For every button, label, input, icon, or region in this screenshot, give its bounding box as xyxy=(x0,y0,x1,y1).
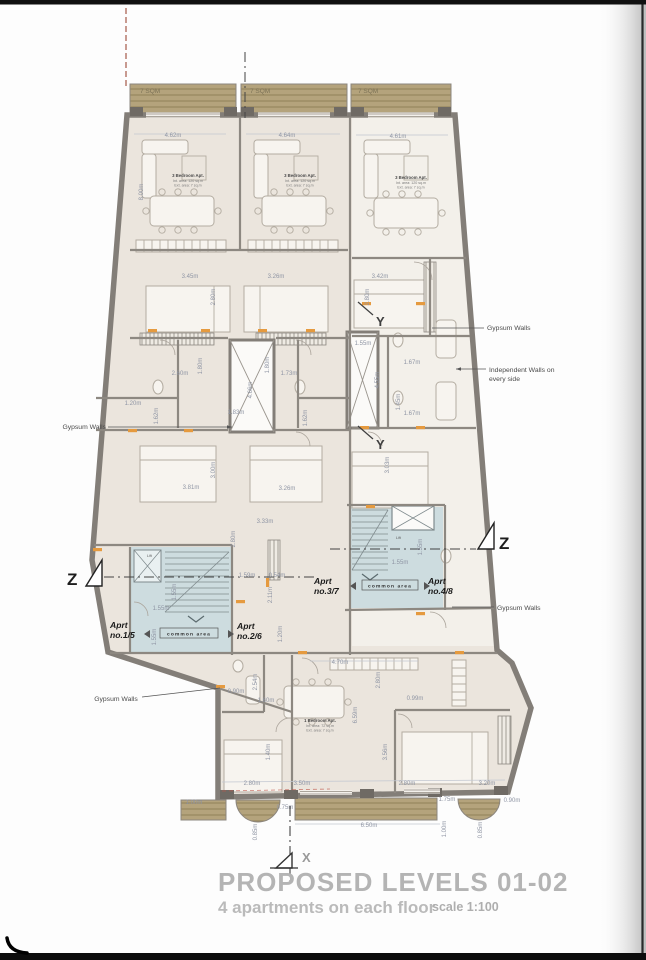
section-marker-y-upper: Y xyxy=(376,314,385,329)
drawing-title: PROPOSED LEVELS 01-02 xyxy=(218,867,568,897)
dimension-label: 0.90m xyxy=(504,798,521,804)
dimension-label: 1.75m xyxy=(439,797,456,803)
dimension-label: 4.66m xyxy=(248,382,254,399)
dimension-label: 1.80m xyxy=(198,358,204,375)
gypsum-walls-note: Gypsum Walls xyxy=(497,605,541,612)
dimension-label: 0.54m xyxy=(269,573,286,579)
dimension-label: 0.85m xyxy=(478,822,484,839)
dimension-label: 3.50m xyxy=(294,781,311,787)
gypsum-walls-note: Gypsum Walls xyxy=(62,424,106,431)
apartment-tag: Aprt xyxy=(313,576,333,586)
dimension-label: 2.80m xyxy=(211,289,217,306)
dimension-label: 4.61m xyxy=(390,134,407,140)
dimension-label: 0.99m xyxy=(407,696,424,702)
dimension-label: 0.90m xyxy=(228,689,245,695)
balcony-semicircle-left xyxy=(236,800,280,822)
unit-int-area: Int. area: 120 sq.m xyxy=(285,179,315,183)
dimension-label: 3.26m xyxy=(268,274,285,280)
dimension-label: 0.85m xyxy=(253,824,259,841)
scan-bottom-bar xyxy=(0,953,646,960)
lift-label: Lift xyxy=(147,554,152,558)
apartment-tag: Aprt xyxy=(109,620,129,630)
gypsum-walls-note: Gypsum Walls xyxy=(94,696,138,703)
dimension-label: 1.62m xyxy=(154,408,160,425)
dimension-label: 8.00m xyxy=(139,184,145,201)
apartment-tag: Aprt xyxy=(236,621,256,631)
dimension-label: 2.80m xyxy=(376,672,382,689)
dimension-label: 1.55m xyxy=(418,539,424,556)
dimension-label: 1.45m xyxy=(396,394,402,411)
dimension-label: 1.55m xyxy=(152,629,158,646)
section-marker-z-left: Z xyxy=(67,570,77,589)
dimension-label: 3.00m xyxy=(211,462,217,479)
dimension-label: 1.20m xyxy=(125,401,142,407)
section-marker-z-right: Z xyxy=(499,534,509,553)
unit-name: 3 Bedroom Apt. xyxy=(395,175,427,180)
common-area-label: common area xyxy=(368,584,412,590)
apartment-tag: no.1/5 xyxy=(110,630,135,640)
dimension-label: 4.62m xyxy=(165,133,182,139)
dimension-label: 3.20m xyxy=(479,781,496,787)
page-edge-shadow xyxy=(598,0,646,960)
dimension-label: 1.00m xyxy=(442,821,448,838)
dimension-label: 2.80m xyxy=(231,531,237,548)
apartment-tag: Aprt xyxy=(427,576,447,586)
dimension-label: 3.81m xyxy=(183,485,200,491)
unit-ext-area: Ext. area: 7 sq.m xyxy=(306,729,333,733)
dimension-label: 1.62m xyxy=(303,410,309,427)
apartment-tag: no.3/7 xyxy=(314,586,340,596)
unit-info-right: 3 Bedroom Apt. Int. area: 120 sq.m Ext. … xyxy=(395,175,427,190)
unit-info-middle: 3 Bedroom Apt. Int. area: 120 sq.m Ext. … xyxy=(284,173,316,188)
dimension-label: 2.80m xyxy=(244,781,261,787)
apartment-tag: no.4/8 xyxy=(428,586,453,596)
dimension-label: 6.50m xyxy=(361,823,378,829)
dimension-label: 2.80m xyxy=(399,781,416,787)
dimension-label: 1.73m xyxy=(281,371,298,377)
dimension-label: 1.80m xyxy=(265,357,271,374)
dimension-label: 1.60m xyxy=(258,698,275,704)
apartment-tag: no.2/6 xyxy=(237,631,262,641)
dimension-label: 6.59m xyxy=(353,707,359,724)
dimension-label: 2.80m xyxy=(365,289,371,306)
unit-name: 3 Bedroom Apt. xyxy=(172,173,204,178)
dimension-label: 4.70m xyxy=(332,660,349,666)
unit-info-bottom: 1 Bedroom Apt. Int. area: 72 sq.m Ext. a… xyxy=(304,718,336,733)
drawing-scale: scale 1:100 xyxy=(432,900,499,914)
floor-plan-drawing: 7 SQM 7 SQM 7 SQM 3 Bedroom Apt. Int. ar… xyxy=(0,0,646,960)
dimension-label: 1.55m xyxy=(172,584,178,601)
unit-ext-area: Ext. area: 7 sq.m xyxy=(174,184,201,188)
dimension-label: 1.55m xyxy=(153,606,170,612)
unit-ext-area: Ext. area: 7 sq.m xyxy=(286,184,313,188)
dimension-label: 3.33m xyxy=(257,519,274,525)
balcony-semicircle-right xyxy=(458,799,500,820)
dimension-label: 3.56m xyxy=(383,744,389,761)
dimension-label: 1.55m xyxy=(355,341,372,347)
unit-ext-area: Ext. area: 7 sq.m xyxy=(397,186,424,190)
dimension-label: 1.59m xyxy=(239,573,256,579)
dimension-label: 3.45m xyxy=(182,274,199,280)
dimension-label: 3.26m xyxy=(279,486,296,492)
dimension-label: 0.75m xyxy=(277,805,294,811)
unit-info-left: 3 Bedroom Apt. Int. area: 120 sq.m Ext. … xyxy=(172,173,204,188)
unit-name: 3 Bedroom Apt. xyxy=(284,173,316,178)
unit-int-area: Int. area: 120 sq.m xyxy=(396,181,426,185)
dimension-label: 1.40m xyxy=(266,744,272,761)
balcony-area-label: 7 SQM xyxy=(250,88,270,95)
gypsum-walls-note: Gypsum Walls xyxy=(487,325,531,332)
unit-int-area: Int. area: 120 sq.m xyxy=(173,179,203,183)
common-area-label: common area xyxy=(167,632,211,638)
dimension-label: 1.55m xyxy=(392,560,409,566)
section-marker-x: X xyxy=(302,850,311,865)
dimension-label: 2.54m xyxy=(253,674,259,691)
unit-int-area: Int. area: 72 sq.m xyxy=(306,724,334,728)
unit-name: 1 Bedroom Apt. xyxy=(304,718,336,723)
section-marker-y-lower: Y xyxy=(376,437,385,452)
dimension-label: 1.67m xyxy=(404,411,421,417)
independent-walls-note: Independent Walls on xyxy=(489,367,555,374)
independent-walls-note: every side xyxy=(489,376,520,383)
drawing-subtitle: 4 apartments on each floor xyxy=(218,898,436,917)
dimension-label: 2.11m xyxy=(268,587,274,603)
dimension-label: 3.03m xyxy=(385,457,391,474)
balcony-area-label: 7 SQM xyxy=(140,88,160,95)
lift-label: Lift xyxy=(396,536,401,540)
dimension-label: 3.42m xyxy=(372,274,389,280)
dimension-label: 2.60m xyxy=(172,371,189,377)
dimension-label: 1.67m xyxy=(404,360,421,366)
page-curl-mark xyxy=(7,938,27,953)
dimension-label: 1.20m xyxy=(278,626,284,643)
dimension-label: 4.55m xyxy=(375,372,381,389)
scan-top-bar xyxy=(0,0,646,5)
title-block: PROPOSED LEVELS 01-02 4 apartments on ea… xyxy=(218,867,568,917)
balcony-bottom-deck xyxy=(295,798,437,820)
dimension-label: 1.83m xyxy=(228,410,245,416)
scanned-floor-plan-page: { "title_block": { "title": "PROPOSED LE… xyxy=(0,0,646,960)
dimension-label: 1.00m xyxy=(186,800,203,806)
dimension-label: 4.64m xyxy=(279,133,296,139)
balcony-area-label: 7 SQM xyxy=(358,88,378,95)
